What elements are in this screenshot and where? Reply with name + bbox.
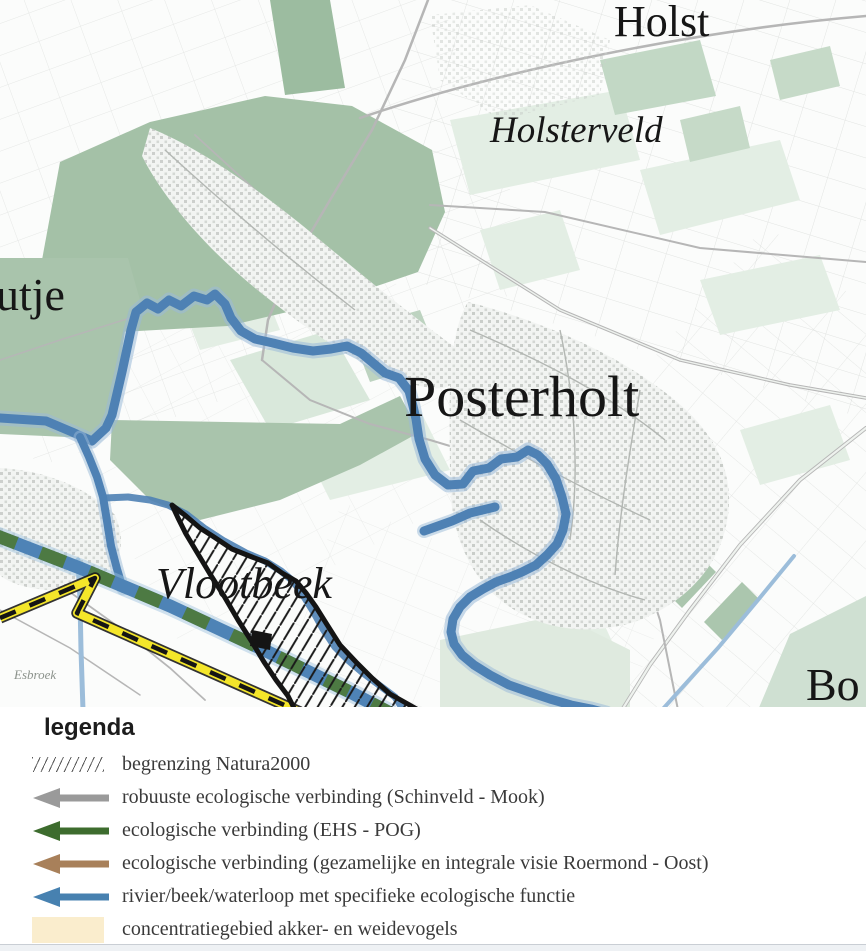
legend-item-robuuste-verbinding: robuuste ecologische verbinding (Schinve… — [0, 781, 866, 814]
legend-item-label: ecologische verbinding (EHS - POG) — [122, 819, 421, 842]
legend-item-roermond-oost: ecologische verbinding (gezamelijke en i… — [0, 847, 866, 880]
hatch-swatch — [32, 757, 104, 772]
fill-swatch — [32, 917, 104, 943]
legend-title: legenda — [0, 707, 866, 748]
left-arrow-icon — [32, 886, 110, 908]
legend-item-concentratiegebied: concentratiegebied akker- en weidevogels — [0, 913, 866, 946]
place-label-utje-partial: utje — [0, 272, 65, 318]
place-label-holsterveld: Holsterveld — [490, 112, 663, 149]
place-label-holst: Holst — [614, 0, 709, 44]
left-arrow-icon — [32, 853, 110, 875]
place-label-posterholt: Posterholt — [404, 368, 639, 426]
map-canvas — [0, 0, 866, 710]
legend-item-label: robuuste ecologische verbinding (Schinve… — [122, 786, 545, 809]
legend-item-label: rivier/beek/waterloop met specifieke eco… — [122, 885, 575, 908]
legend-item-ehs-pog: ecologische verbinding (EHS - POG) — [0, 814, 866, 847]
left-arrow-icon — [32, 820, 110, 842]
legend-item-natura2000: begrenzing Natura2000 — [0, 748, 866, 781]
legend-item-label: ecologische verbinding (gezamelijke en i… — [122, 852, 708, 875]
map-screenshot: Holst Holsterveld utje Posterholt Vlootb… — [0, 0, 866, 951]
place-label-vlootbeek: Vlootbeek — [156, 562, 332, 606]
legend-panel: legenda begrenzing Natura2000 robuuste e… — [0, 707, 866, 944]
left-arrow-icon — [32, 787, 110, 809]
place-label-esbroek: Esbroek — [14, 668, 56, 681]
legend-item-label: begrenzing Natura2000 — [122, 753, 310, 776]
topographic-map: Holst Holsterveld utje Posterholt Vlootb… — [0, 0, 866, 710]
legend-item-rivier-beek: rivier/beek/waterloop met specifieke eco… — [0, 880, 866, 913]
legend-item-label: concentratiegebied akker- en weidevogels — [122, 918, 458, 941]
bottom-strip — [0, 944, 866, 951]
place-label-bo-partial: Bo — [806, 662, 860, 708]
